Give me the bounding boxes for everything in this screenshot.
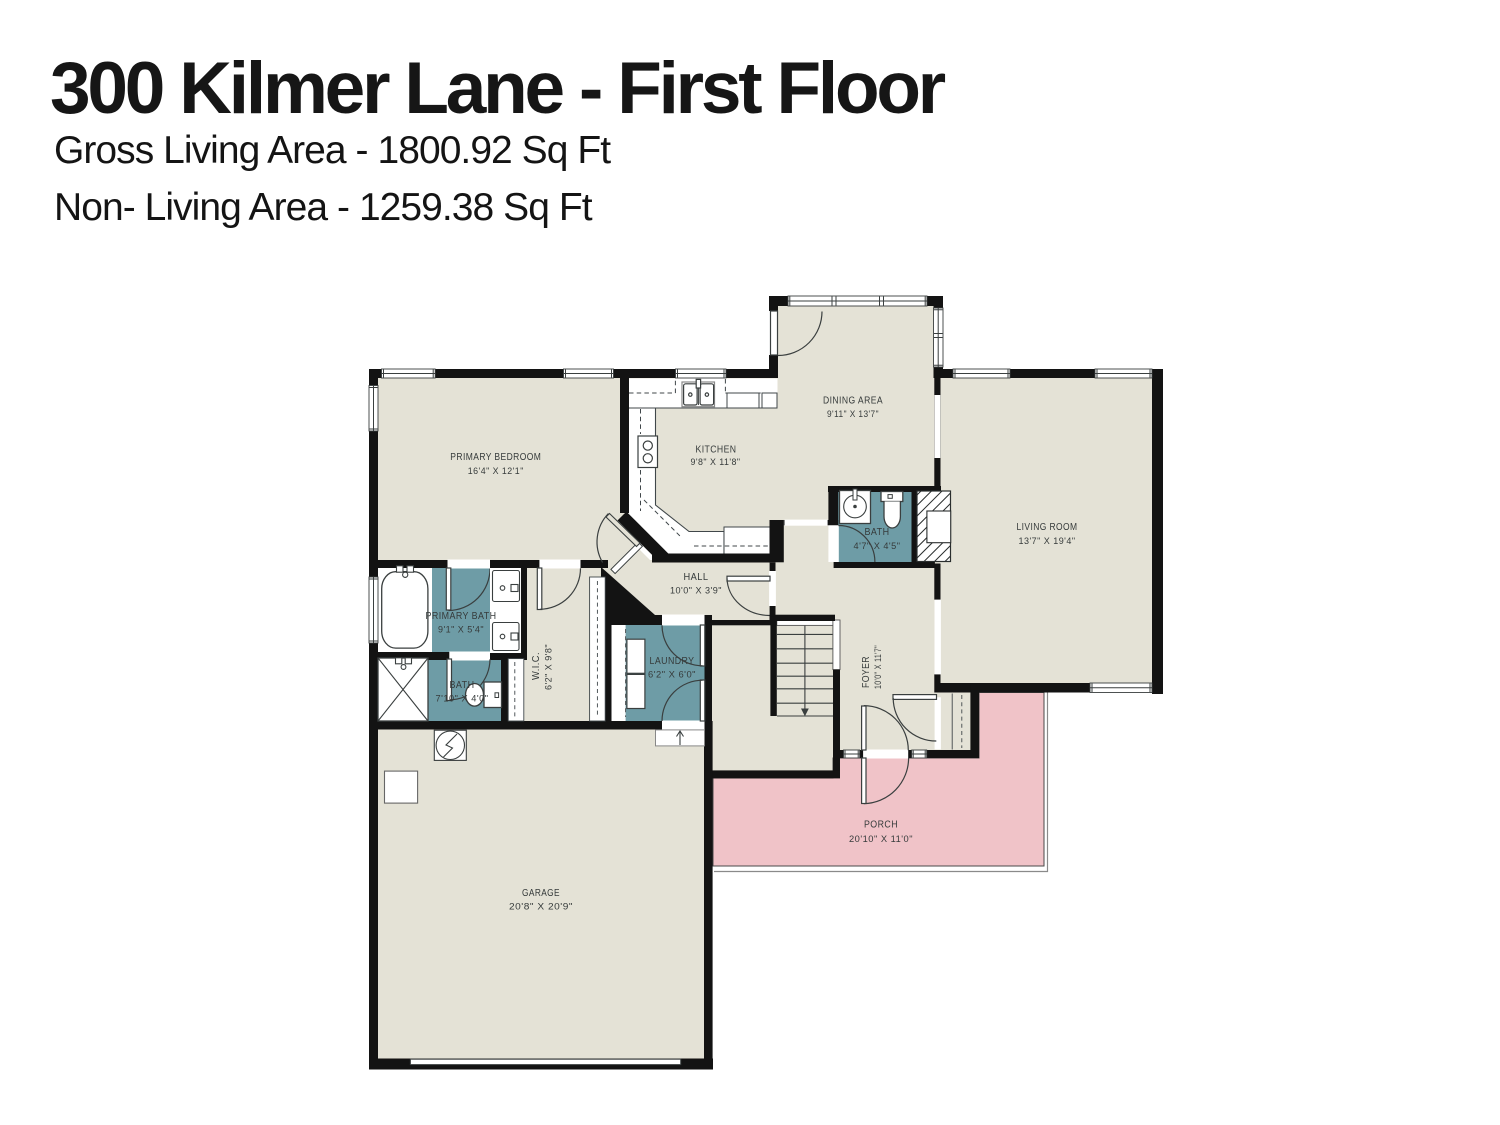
svg-text:DINING AREA: DINING AREA — [823, 396, 883, 407]
svg-text:10'0" X 11'7": 10'0" X 11'7" — [873, 645, 884, 689]
svg-text:LIVING ROOM: LIVING ROOM — [1017, 522, 1078, 533]
svg-text:7'10" X 4'0": 7'10" X 4'0" — [436, 694, 489, 705]
svg-text:10'0" X 3'9": 10'0" X 3'9" — [670, 586, 722, 597]
svg-text:GARAGE: GARAGE — [522, 888, 560, 899]
svg-text:PORCH: PORCH — [864, 820, 898, 831]
svg-text:6'2" X 6'0": 6'2" X 6'0" — [648, 670, 696, 681]
svg-text:20'8" X 20'9": 20'8" X 20'9" — [509, 902, 573, 913]
svg-text:4'7" X 4'5": 4'7" X 4'5" — [854, 541, 901, 552]
svg-text:9'1" X 5'4": 9'1" X 5'4" — [438, 625, 484, 636]
svg-text:6'2" X 9'8": 6'2" X 9'8" — [544, 644, 555, 690]
svg-text:9'8" X 11'8": 9'8" X 11'8" — [691, 457, 741, 468]
svg-text:W.I.C.: W.I.C. — [531, 652, 542, 680]
svg-text:9'11" X 13'7": 9'11" X 13'7" — [827, 409, 879, 420]
svg-text:LAUNDRY: LAUNDRY — [650, 656, 695, 667]
svg-text:16'4" X 12'1": 16'4" X 12'1" — [468, 466, 524, 477]
svg-text:PRIMARY BEDROOM: PRIMARY BEDROOM — [450, 452, 541, 463]
svg-text:FOYER: FOYER — [861, 656, 872, 688]
svg-text:BATH: BATH — [865, 527, 890, 538]
svg-text:PRIMARY BATH: PRIMARY BATH — [426, 611, 497, 622]
svg-text:13'7" X 19'4": 13'7" X 19'4" — [1019, 536, 1076, 547]
svg-text:KITCHEN: KITCHEN — [696, 445, 737, 456]
svg-text:BATH: BATH — [450, 680, 475, 691]
svg-text:HALL: HALL — [684, 572, 709, 583]
svg-text:20'10" X 11'0": 20'10" X 11'0" — [849, 834, 913, 845]
